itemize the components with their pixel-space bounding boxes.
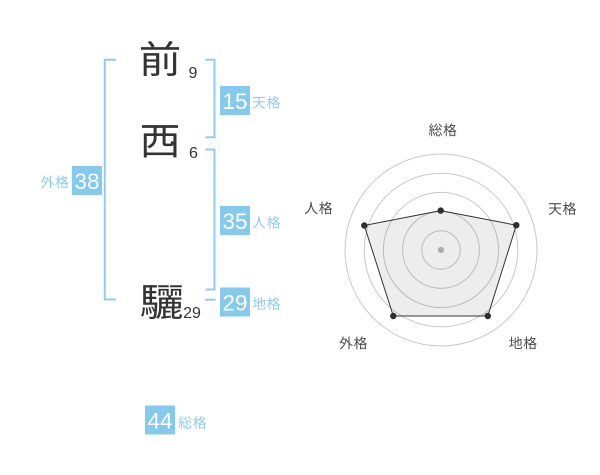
svg-text:29: 29: [222, 291, 247, 316]
svg-text:35: 35: [222, 209, 247, 234]
svg-text:9: 9: [189, 65, 198, 82]
svg-text:38: 38: [74, 169, 99, 194]
svg-text:15: 15: [222, 89, 247, 114]
svg-text:29: 29: [183, 305, 201, 322]
svg-text:44: 44: [147, 409, 172, 434]
svg-text:6: 6: [189, 145, 198, 162]
